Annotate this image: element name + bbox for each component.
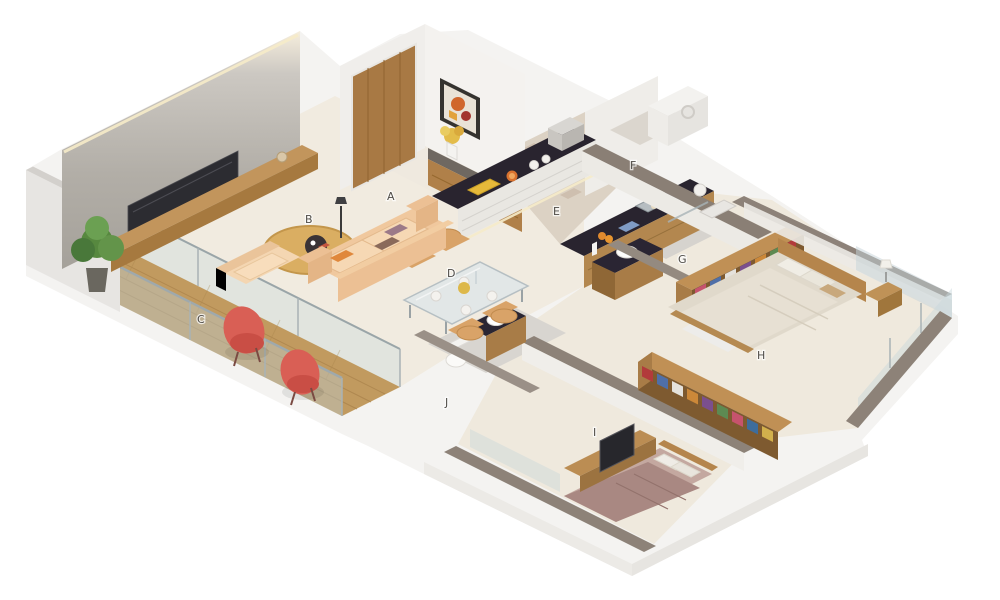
coffee-table-decor — [311, 241, 316, 246]
art-blob-red — [461, 111, 471, 121]
room-label-a: A — [387, 190, 395, 203]
milk-bottle — [592, 242, 597, 257]
orange-dish-center — [509, 173, 515, 179]
room-label-f: F — [630, 159, 636, 172]
room-label-c: C — [197, 313, 205, 326]
room-label-g: G — [678, 253, 687, 266]
plant-pot — [86, 268, 108, 292]
room-label-h: H — [757, 349, 765, 362]
art-blob-orange — [451, 97, 465, 111]
centerpiece-flowers — [458, 282, 470, 294]
room-label-j: J — [444, 396, 448, 409]
flowers — [440, 126, 450, 136]
table-lamp-shade — [880, 260, 892, 268]
place-setting — [431, 291, 441, 301]
plate — [530, 161, 539, 170]
chair-seat — [287, 375, 319, 393]
geyser — [694, 184, 706, 196]
decor-bowl — [277, 152, 287, 162]
room-label-i: I — [593, 426, 596, 439]
plant-foliage — [71, 238, 95, 262]
room-label-b: B — [305, 213, 313, 226]
place-setting — [487, 291, 497, 301]
flowers — [454, 126, 464, 136]
plate — [542, 155, 550, 163]
place-setting — [461, 305, 471, 315]
plant-foliage — [85, 216, 109, 240]
room-label-e: E — [553, 205, 560, 218]
floorplan-render: A B C D E F G H I J — [0, 0, 1000, 600]
orange-fruit — [598, 232, 606, 240]
room-label-d: D — [447, 267, 455, 280]
chair-seat — [230, 333, 264, 353]
orange-fruit — [605, 235, 613, 243]
floorplan-svg: A B C D E F G H I J — [0, 0, 1000, 600]
